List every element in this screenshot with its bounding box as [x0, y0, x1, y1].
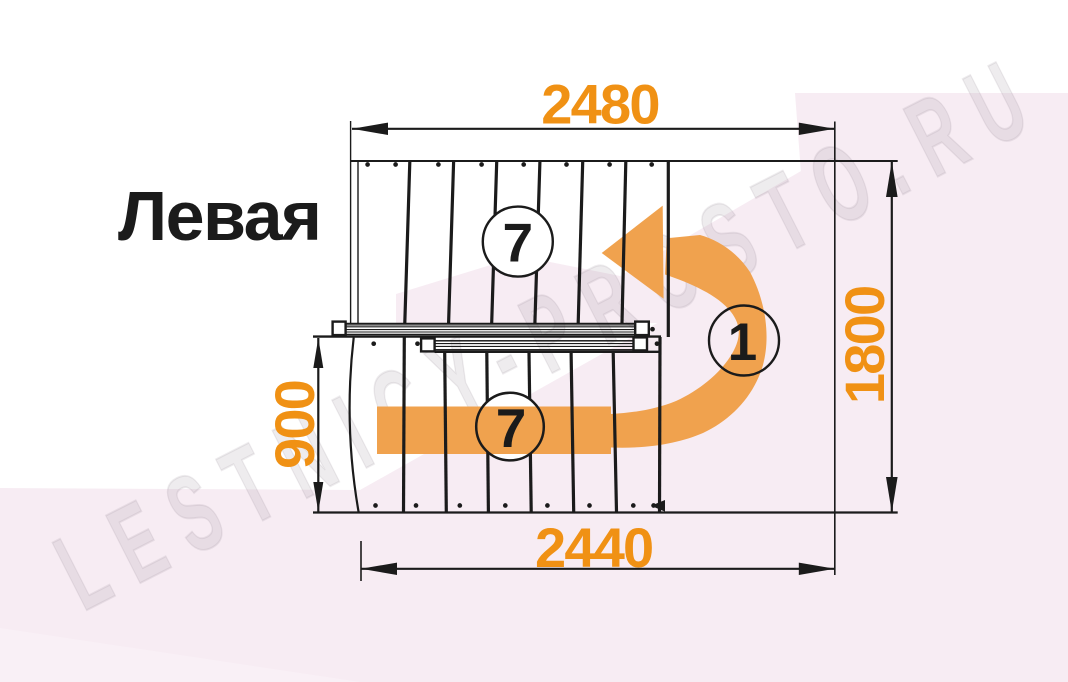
- svg-text:7: 7: [503, 212, 534, 274]
- svg-text:2440: 2440: [535, 516, 652, 579]
- svg-text:2480: 2480: [541, 73, 658, 136]
- svg-text:7: 7: [496, 397, 527, 459]
- svg-text:900: 900: [263, 381, 326, 469]
- svg-text:1: 1: [728, 313, 757, 372]
- svg-text:1800: 1800: [833, 287, 896, 404]
- svg-text:Левая: Левая: [118, 177, 320, 255]
